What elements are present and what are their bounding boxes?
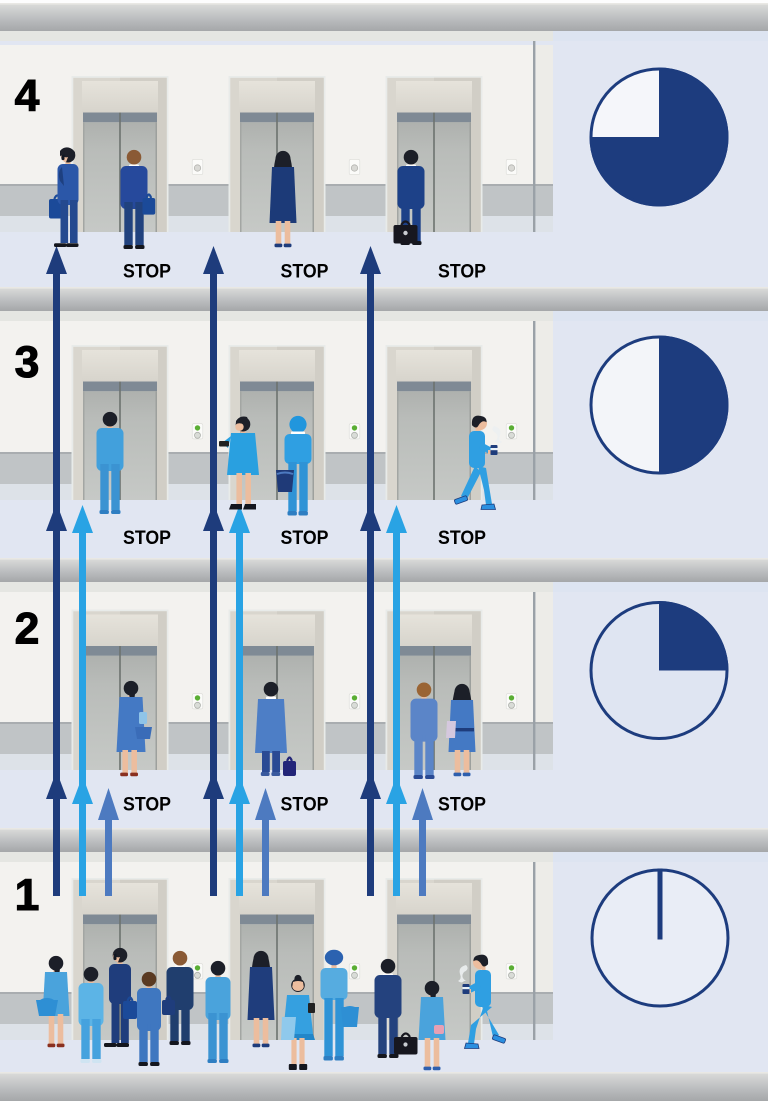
svg-text:4: 4 — [15, 72, 40, 121]
svg-text:2: 2 — [15, 605, 40, 654]
svg-text:STOP: STOP — [438, 261, 486, 283]
svg-text:STOP: STOP — [281, 261, 329, 283]
svg-text:STOP: STOP — [123, 794, 171, 816]
svg-text:3: 3 — [15, 338, 40, 387]
svg-text:STOP: STOP — [281, 794, 329, 816]
svg-text:STOP: STOP — [438, 794, 486, 816]
svg-text:STOP: STOP — [123, 261, 171, 283]
svg-text:STOP: STOP — [281, 527, 329, 549]
svg-text:STOP: STOP — [123, 527, 171, 549]
svg-text:STOP: STOP — [438, 527, 486, 549]
svg-text:1: 1 — [15, 871, 40, 920]
